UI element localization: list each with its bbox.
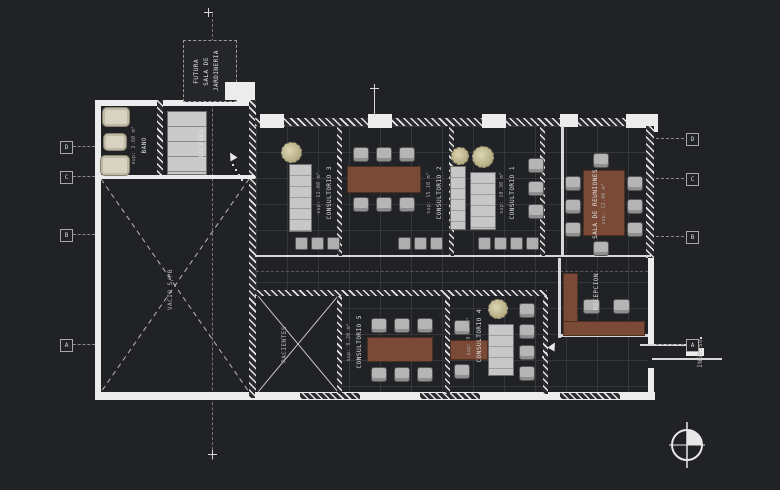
office-chair — [376, 197, 392, 212]
office-chair — [565, 176, 581, 191]
office-chair — [399, 197, 415, 212]
grid-tick — [73, 234, 95, 235]
office-chair — [565, 199, 581, 214]
wall-lowerband-top — [255, 290, 547, 296]
north-compass-icon — [664, 422, 710, 468]
bano-name: BAÑO — [140, 137, 149, 153]
office-chair — [371, 367, 387, 382]
office-chair — [627, 176, 643, 191]
sink — [103, 133, 127, 151]
grid-tick — [656, 236, 684, 237]
wall-recepcion-left — [558, 258, 561, 338]
grid-marker-right-a: A — [686, 339, 699, 352]
datum-tick — [208, 450, 217, 459]
office-chair — [519, 324, 535, 339]
desk — [347, 166, 421, 193]
grid-letter: B — [691, 234, 695, 241]
office-chair — [528, 204, 544, 219]
pacientes-cross — [258, 296, 338, 392]
waiting-chair — [295, 237, 308, 250]
wall-right-mid — [648, 258, 654, 346]
wall-main-top — [255, 118, 651, 126]
wall-bath-divider — [157, 100, 163, 179]
grid-tick — [656, 178, 684, 179]
toilet — [100, 155, 130, 176]
grid-tick — [656, 138, 684, 139]
grid-letter: D — [691, 136, 695, 143]
datum-tick — [204, 8, 213, 17]
office-chair — [417, 318, 433, 333]
pillar-top-3 — [482, 114, 506, 128]
waiting-chair — [510, 237, 523, 250]
grid-marker-right-b: B — [686, 231, 699, 244]
office-chair — [593, 241, 609, 256]
grid-marker-left-a: A — [60, 339, 73, 352]
plant — [451, 147, 469, 165]
grid-marker-left-d: D — [60, 141, 73, 154]
office-chair — [565, 222, 581, 237]
office-chair — [627, 199, 643, 214]
waiting-chair — [311, 237, 324, 250]
office-chair — [399, 147, 415, 162]
grid-marker-right-c: C — [686, 173, 699, 186]
grid-tick — [656, 344, 684, 345]
waiting-chair — [398, 237, 411, 250]
datum-stem — [374, 93, 375, 118]
office-chair — [613, 299, 630, 314]
wall-bottom-hatch-1 — [300, 393, 360, 399]
office-chair — [528, 181, 544, 196]
grid-letter: C — [65, 174, 69, 181]
grid-marker-right-d: D — [686, 133, 699, 146]
wall-leftwing-right — [249, 100, 256, 398]
grid-tick — [73, 146, 95, 147]
wall-right-upper — [646, 126, 654, 258]
office-chair — [394, 367, 410, 382]
grid-letter: D — [65, 144, 69, 151]
desk — [450, 340, 488, 360]
waiting-chair — [327, 237, 340, 250]
corridor-centerline — [256, 271, 648, 272]
office-chair — [454, 320, 470, 335]
office-chair — [583, 299, 600, 314]
office-chair — [519, 366, 535, 381]
grid-tick — [73, 344, 95, 345]
office-chair — [394, 318, 410, 333]
desk — [367, 337, 433, 362]
waiting-chair — [414, 237, 427, 250]
waiting-chair — [430, 237, 443, 250]
office-chair — [353, 197, 369, 212]
wall-futura-stub — [225, 82, 255, 100]
grid-letter: C — [691, 176, 695, 183]
exam-bed — [470, 172, 496, 230]
bano-area: sup: 2.60 m² — [131, 126, 139, 165]
exam-bed — [450, 166, 466, 230]
partition-pac-c5 — [337, 296, 342, 394]
wall-left-outer — [95, 100, 101, 398]
office-chair — [353, 147, 369, 162]
pillar-top-1 — [260, 114, 284, 128]
direction-dots-icon — [232, 164, 234, 166]
office-chair — [519, 303, 535, 318]
grid-marker-left-b: B — [60, 229, 73, 242]
plant — [488, 299, 508, 319]
reception-desk — [563, 321, 645, 336]
plant — [281, 142, 302, 163]
toilet — [102, 107, 130, 127]
office-chair — [417, 367, 433, 382]
exam-bed — [488, 324, 514, 376]
locker-cabinet — [167, 111, 207, 175]
direction-dots-icon — [545, 352, 547, 354]
office-chair — [528, 158, 544, 173]
pillar-top-2 — [368, 114, 392, 128]
office-chair — [627, 222, 643, 237]
office-chair — [371, 318, 387, 333]
waiting-chair — [526, 237, 539, 250]
office-chair — [593, 153, 609, 168]
office-chair — [519, 345, 535, 360]
waiting-chair — [478, 237, 491, 250]
grid-marker-left-c: C — [60, 171, 73, 184]
plant — [472, 146, 494, 168]
grid-letter: B — [65, 232, 69, 239]
vacio-cross — [101, 179, 249, 392]
entrance-line-lower — [652, 358, 722, 360]
office-chair — [376, 147, 392, 162]
partition-c4-hall — [543, 296, 548, 394]
grid-letter: A — [691, 342, 695, 349]
wall-bottom-hatch-2 — [420, 393, 480, 399]
waiting-chair — [494, 237, 507, 250]
floor-plan-canvas: FUTURA SALA DE JARDINERIA sup: 2.60 m² B… — [0, 0, 780, 490]
office-chair — [454, 364, 470, 379]
direction-arrow-icon — [227, 151, 238, 162]
meeting-table — [583, 170, 625, 236]
wall-leftwing-bottom — [95, 392, 259, 400]
grid-letter: A — [65, 342, 69, 349]
wall-bottom-hatch-3 — [560, 393, 620, 399]
partition-sala-left — [561, 126, 564, 256]
datum-tick — [370, 84, 379, 93]
room-label-bano: sup: 2.60 m² BAÑO — [131, 116, 149, 174]
grid-tick — [73, 176, 95, 177]
exam-bed — [289, 164, 312, 232]
